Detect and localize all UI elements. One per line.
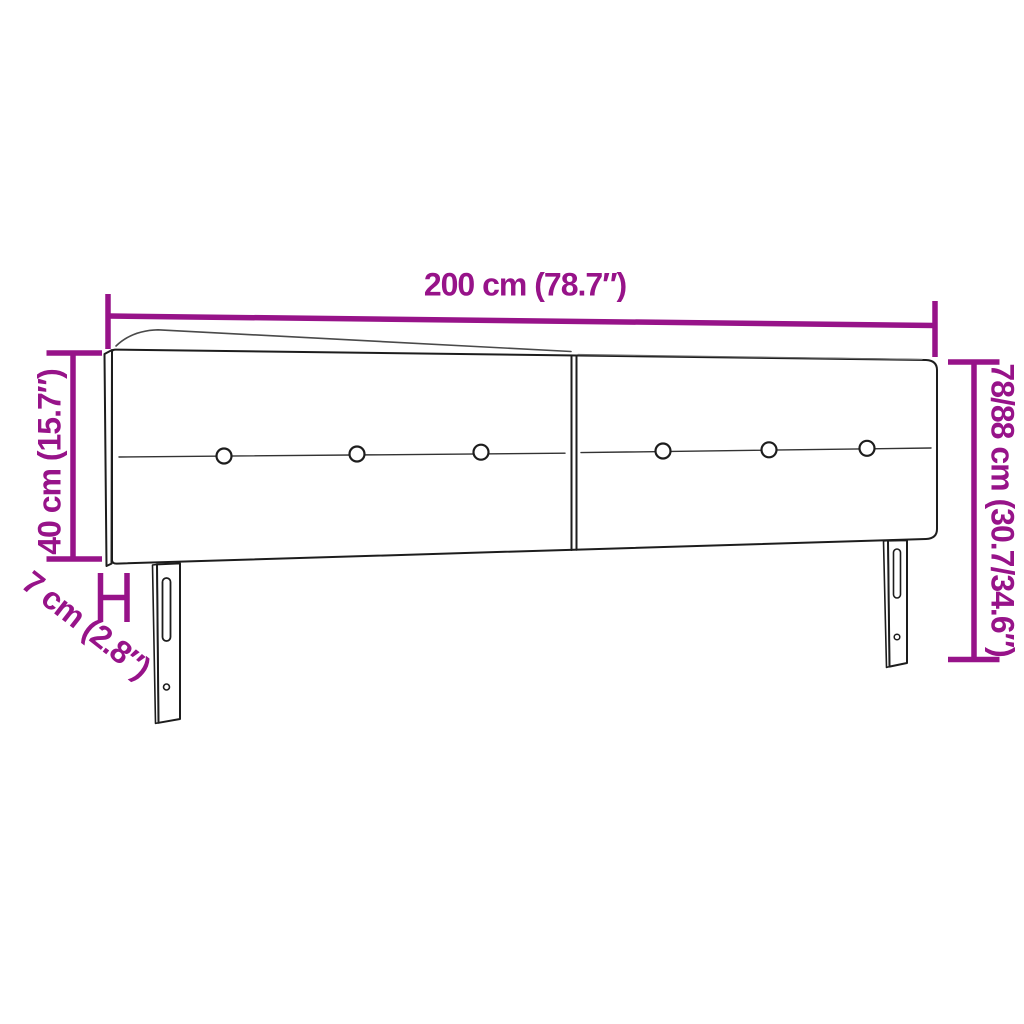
height-left-label: 40 cm (15.7″) <box>32 369 69 555</box>
left-leg <box>153 563 181 723</box>
button-5 <box>762 442 777 457</box>
tufting-buttons <box>217 441 875 464</box>
headboard-dimension-drawing <box>0 0 1024 1024</box>
headboard-center-split-line <box>572 356 577 550</box>
headboard-top-back-edge <box>116 330 571 352</box>
crease-left-panel <box>119 453 565 457</box>
button-2 <box>350 447 365 462</box>
right-leg <box>884 540 908 667</box>
left-leg-side-face <box>153 564 159 723</box>
left-leg-hole <box>164 684 170 690</box>
width-label: 200 cm (78.7″) <box>424 267 626 304</box>
button-4 <box>656 444 671 459</box>
crease-right-panel <box>581 448 931 453</box>
left-leg-slot <box>163 578 171 641</box>
right-leg-slot <box>894 549 901 598</box>
height-right-label: 78/88 cm (30.7/34.6″) <box>984 363 1021 656</box>
right-leg-front-face <box>888 540 907 666</box>
right-leg-hole <box>894 634 900 640</box>
button-1 <box>217 449 232 464</box>
dimension-line-depth <box>101 573 128 622</box>
right-leg-side-face <box>884 541 890 668</box>
button-6 <box>860 441 875 456</box>
left-leg-front-face <box>157 563 180 722</box>
diagram-canvas: 200 cm (78.7″) 40 cm (15.7″) 7 cm (2.8″)… <box>0 0 1024 1024</box>
button-3 <box>474 445 489 460</box>
headboard-left-side-face <box>105 350 113 566</box>
